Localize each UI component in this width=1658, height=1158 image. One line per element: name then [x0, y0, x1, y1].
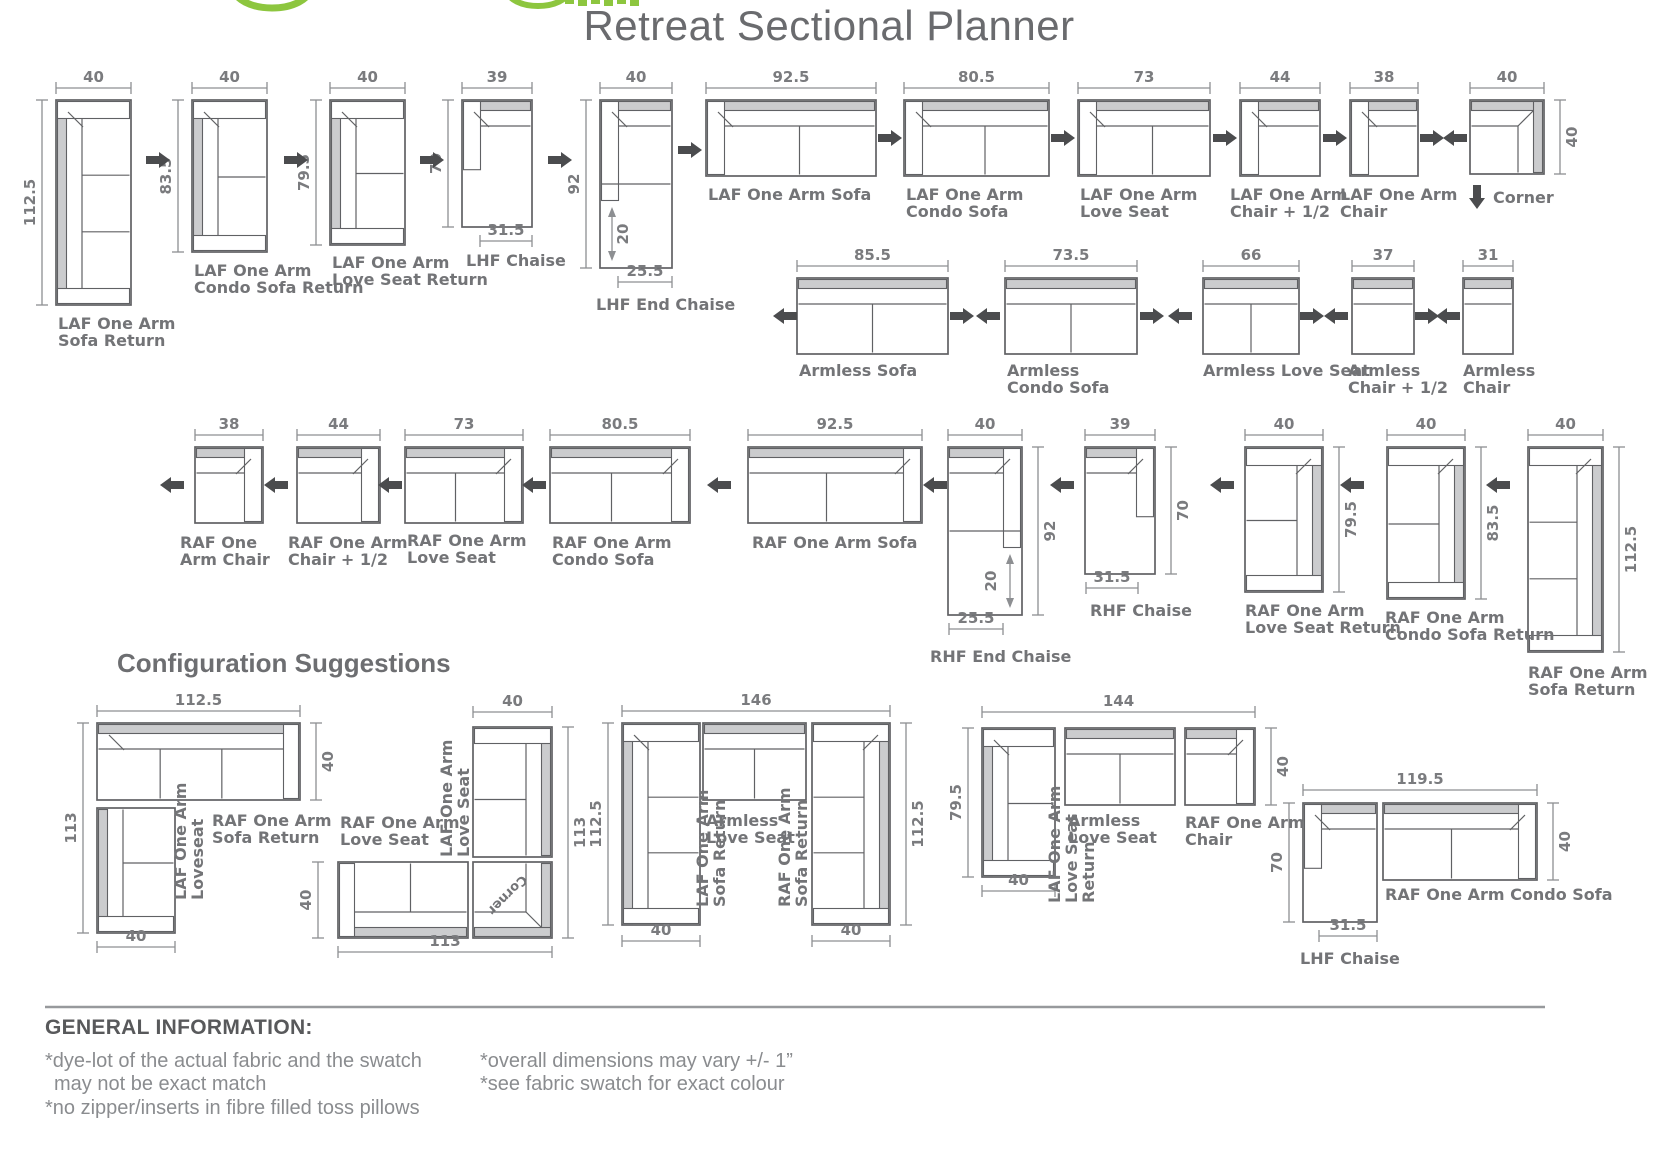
piece-label: RAF One ArmLove Seat Return	[1245, 601, 1401, 637]
dimension-label: 40	[1497, 68, 1518, 86]
connector-arrow-right-icon	[548, 152, 572, 168]
dimension-label: 40	[626, 68, 647, 86]
figure-cfg5-lhf-chaise	[1303, 803, 1377, 922]
dimension-113: 113	[62, 723, 89, 933]
dimension-label: 144	[1103, 692, 1134, 710]
figure-lhf-chaise	[462, 100, 532, 227]
dimension-40: 40	[56, 68, 131, 94]
piece-label: LAF One Arm Sofa	[708, 185, 871, 204]
dimension-label: 40	[502, 692, 523, 710]
connector-arrow-right-icon	[1415, 308, 1439, 324]
dimension-85.5: 85.5	[797, 246, 948, 272]
piece-label: RAF One ArmSofa Return	[1528, 663, 1648, 699]
piece-label: RAF One ArmChair	[1185, 813, 1305, 849]
dimension-40: 40	[473, 692, 552, 718]
dimension-label: 40	[1274, 415, 1295, 433]
figure-armless-love-seat	[1203, 278, 1299, 354]
dimension-40: 40	[192, 68, 267, 94]
dimension-label: 31	[1478, 246, 1499, 264]
dimension-112.5: 112.5	[1613, 447, 1640, 652]
connector-arrow-right-icon	[878, 130, 902, 146]
figure-cfg5-raf-condo-sofa	[1383, 803, 1537, 880]
dimension-label: 112.5	[1622, 526, 1640, 573]
dimension-146: 146	[622, 691, 890, 717]
note-dye-lot-cont: may not be exact match	[45, 1073, 266, 1096]
dimension-92: 92	[565, 100, 592, 268]
sectional-planner-page: Corner40112.54083.54079.5397031.54092202…	[0, 0, 1658, 1158]
connector-arrow-left-icon	[1436, 308, 1460, 324]
connector-arrow-left-icon	[1324, 308, 1348, 324]
dimension-label: 70	[1268, 852, 1286, 873]
dimension-40: 40	[1265, 728, 1292, 805]
dimension-label: 112.5	[909, 800, 927, 847]
figure-cfg1-laf-loveseat	[97, 808, 175, 933]
connector-arrow-left-icon	[1168, 308, 1192, 324]
dimension-79.5: 79.5	[1333, 447, 1360, 592]
connector-arrow-right-icon	[678, 142, 702, 158]
connector-arrow-right-icon	[1140, 308, 1164, 324]
note-dimensions-vary: *overall dimensions may vary +/- 1”	[480, 1050, 793, 1073]
piece-label: RAF One Arm Condo Sofa	[1385, 885, 1613, 904]
dimension-73: 73	[405, 415, 523, 441]
connector-arrow-left-icon	[923, 477, 947, 493]
piece-label: RAF One ArmChair + 1/2	[288, 533, 408, 569]
piece-label: LAF One ArmCondo Sofa	[906, 185, 1023, 221]
dimension-112.5: 112.5	[900, 723, 927, 925]
figure-laf-one-arm-chair	[1350, 100, 1418, 176]
figure-armless-chair	[1463, 278, 1513, 354]
dimension-40: 40	[600, 68, 672, 94]
dimension-44: 44	[1240, 68, 1320, 94]
piece-label: RHF Chaise	[1090, 601, 1192, 620]
dimension-label: 40	[1556, 831, 1574, 852]
dimension-label: 79.5	[947, 784, 965, 821]
piece-label: LAF One ArmChair	[1340, 185, 1457, 221]
dimension-79.5: 79.5	[295, 100, 322, 245]
dimension-label: 40	[841, 921, 862, 939]
dimension-92.5: 92.5	[748, 415, 922, 441]
dimension-70: 70	[1165, 447, 1192, 574]
dimension-label: 119.5	[1396, 770, 1443, 788]
note-no-zipper: *no zipper/inserts in fibre filled toss …	[45, 1097, 420, 1120]
figure-raf-one-arm-sofa	[748, 447, 922, 523]
connector-arrow-left-icon	[264, 477, 288, 493]
dimension-80.5: 80.5	[550, 415, 690, 441]
figure-armless-chair-and-half	[1352, 278, 1414, 354]
figure-lhf-end-chaise	[600, 100, 672, 268]
dimension-label: 40	[83, 68, 104, 86]
dimension-label: 113	[429, 932, 460, 950]
connector-arrow-down-icon	[1469, 185, 1485, 209]
note-dye-lot: *dye-lot of the actual fabric and the sw…	[45, 1050, 422, 1073]
dimension-44: 44	[297, 415, 380, 441]
figure-cfg2-raf-love-seat	[338, 862, 468, 938]
piece-label: RHF End Chaise	[930, 647, 1071, 666]
dimension-label: 83.5	[1484, 504, 1502, 541]
figure-raf-one-arm-chair-and-half	[297, 447, 380, 523]
piece-label: RAF One Arm Sofa	[752, 533, 917, 552]
dimension-label: 38	[1374, 68, 1395, 86]
figure-raf-one-arm-love-seat-return	[1245, 447, 1323, 592]
dimension-83.5: 83.5	[1475, 447, 1502, 599]
dimension-label: 73.5	[1052, 246, 1089, 264]
piece-label: RAF One ArmCondo Sofa	[552, 533, 672, 569]
piece-label: Armless Love Seat	[1203, 361, 1370, 380]
piece-label: RAF One ArmSofa Return	[775, 787, 811, 907]
figure-cfg3-laf-sofa-return	[622, 723, 700, 925]
connector-arrow-left-icon	[707, 477, 731, 493]
dimension-92.5: 92.5	[706, 68, 876, 94]
dimension-label: 31.5	[1093, 568, 1130, 586]
dimension-label: 112.5	[21, 179, 39, 226]
dimension-label: 39	[487, 68, 508, 86]
dimension-119.5: 119.5	[1303, 770, 1537, 796]
figure-laf-one-arm-love-seat-return	[330, 100, 405, 245]
dimension-label: 39	[1110, 415, 1131, 433]
figure-cfg4-armless-love-seat	[1065, 728, 1175, 805]
figure-raf-one-arm-sofa-return	[1528, 447, 1603, 652]
figure-cfg4-raf-chair	[1185, 728, 1255, 805]
config-suggestions-heading: Configuration Suggestions	[117, 648, 451, 679]
general-info-heading: GENERAL INFORMATION:	[45, 1016, 313, 1040]
figure-raf-one-arm-chair	[195, 447, 263, 523]
dimension-38: 38	[195, 415, 263, 441]
dimension-label: 40	[319, 751, 337, 772]
dimension-40: 40	[297, 862, 324, 938]
figure-cfg1-raf-sofa-return	[97, 723, 300, 800]
dimension-label: 113	[62, 812, 80, 843]
dimension-40: 40	[330, 68, 405, 94]
piece-label: Armless Sofa	[799, 361, 917, 380]
connector-arrow-right-icon	[1051, 130, 1075, 146]
dimension-40: 40	[310, 723, 337, 800]
figure-cfg2-corner: Corner	[473, 862, 552, 938]
dimension-83.5: 83.5	[157, 100, 184, 252]
dimension-label: 40	[297, 890, 315, 911]
dimension-label: 66	[1241, 246, 1262, 264]
dimension-label: 25.5	[957, 609, 994, 627]
connector-arrow-right-icon	[950, 308, 974, 324]
figure-laf-one-arm-chair-and-half	[1240, 100, 1320, 176]
dimension-label: 80.5	[601, 415, 638, 433]
dimension-label: 40	[1563, 127, 1581, 148]
connector-arrow-left-icon	[522, 477, 546, 493]
piece-label: LHF Chaise	[466, 251, 566, 270]
dimension-label: 20	[982, 571, 1000, 592]
dimension-label: 44	[1270, 68, 1291, 86]
dimension-112.5: 112.5	[587, 723, 614, 925]
dimension-40: 40	[1547, 803, 1574, 880]
piece-label: Corner	[1493, 188, 1554, 207]
figure-laf-one-arm-sofa-return	[56, 100, 131, 305]
connector-arrow-right-icon	[1420, 130, 1444, 146]
dimension-92: 92	[1032, 447, 1059, 615]
page-title: Retreat Sectional Planner	[0, 2, 1658, 50]
dimension-label: 146	[740, 691, 771, 709]
piece-label: RAF One ArmLove Seat	[407, 531, 527, 567]
dimension-31: 31	[1463, 246, 1513, 272]
dimension-label: 25.5	[626, 262, 663, 280]
connector-arrow-left-icon	[1486, 477, 1510, 493]
dimension-label: 31.5	[487, 221, 524, 239]
dimension-label: 92.5	[772, 68, 809, 86]
piece-label: RAF OneArm Chair	[180, 533, 270, 569]
dimension-31.5: 31.5	[1086, 568, 1138, 594]
dimension-label: 92.5	[816, 415, 853, 433]
figure-corner	[1470, 100, 1544, 174]
piece-label: ArmlessChair	[1463, 361, 1535, 397]
piece-label: LAF One ArmLove Seat Return	[332, 253, 488, 289]
dimension-label: 92	[1041, 521, 1059, 542]
dimension-40: 40	[1245, 415, 1323, 441]
piece-label: LAF One ArmSofa Return	[58, 314, 175, 350]
dimension-label: 85.5	[854, 246, 891, 264]
dimension-40: 40	[1387, 415, 1465, 441]
dimension-39: 39	[1085, 415, 1155, 441]
dimension-label: 40	[1008, 871, 1029, 889]
dimension-label: 79.5	[1342, 501, 1360, 538]
dimension-39: 39	[462, 68, 532, 94]
dimension-label: 40	[651, 921, 672, 939]
dimension-label: 112.5	[175, 691, 222, 709]
connector-arrow-right-icon	[1323, 130, 1347, 146]
figure-laf-one-arm-condo-sofa-return	[192, 100, 267, 252]
dimension-144: 144	[982, 692, 1255, 718]
figure-raf-one-arm-condo-sofa	[550, 447, 690, 523]
dimension-label: 80.5	[958, 68, 995, 86]
piece-label: LAF One ArmChair + 1/2	[1230, 185, 1347, 221]
planner-diagram-canvas: Corner40112.54083.54079.5397031.54092202…	[0, 0, 1658, 1158]
dimension-label: 40	[1274, 756, 1292, 777]
dimension-40: 40	[1528, 415, 1603, 441]
connector-arrow-left-icon	[1050, 477, 1074, 493]
dimension-79.5: 79.5	[947, 728, 974, 877]
figure-armless-condo-sofa	[1005, 278, 1137, 354]
figure-raf-one-arm-love-seat	[405, 447, 523, 523]
figure-raf-one-arm-condo-sofa-return	[1387, 447, 1465, 599]
dimension-31.5: 31.5	[480, 221, 532, 247]
note-fabric-swatch: *see fabric swatch for exact colour	[480, 1073, 785, 1096]
dimension-40: 40	[948, 415, 1022, 441]
piece-label: LAF One ArmLove Seat	[1080, 185, 1197, 221]
dimension-label: 40	[126, 927, 147, 945]
connector-arrow-left-icon	[1443, 130, 1467, 146]
connector-arrow-right-icon	[1213, 130, 1237, 146]
piece-label: LHF End Chaise	[596, 295, 735, 314]
connector-arrow-left-icon	[773, 308, 797, 324]
dimension-label: 40	[1416, 415, 1437, 433]
piece-label: ArmlessChair + 1/2	[1348, 361, 1448, 397]
dimension-40: 40	[1554, 100, 1581, 174]
dimension-label: 44	[328, 415, 349, 433]
figure-cfg3-raf-sofa-return	[812, 723, 890, 925]
dimension-40: 40	[1470, 68, 1544, 94]
dimension-80.5: 80.5	[904, 68, 1049, 94]
connector-arrow-left-icon	[1340, 477, 1364, 493]
dimension-112.5: 112.5	[97, 691, 300, 717]
piece-label: RAF One ArmSofa Return	[212, 811, 332, 847]
dimension-112.5: 112.5	[21, 100, 48, 305]
dimension-label: 20	[614, 224, 632, 245]
figure-laf-one-arm-love-seat	[1078, 100, 1210, 176]
figure-rhf-chaise	[1085, 447, 1155, 574]
piece-label: LAF One ArmSofa Return	[693, 790, 729, 907]
figure-laf-one-arm-condo-sofa	[904, 100, 1049, 176]
dimension-66: 66	[1203, 246, 1299, 272]
dimension-label: 73	[1134, 68, 1155, 86]
dimension-label: 40	[357, 68, 378, 86]
dimension-73: 73	[1078, 68, 1210, 94]
dimension-label: 92	[565, 174, 583, 195]
dimension-37: 37	[1352, 246, 1414, 272]
dimension-label: 112.5	[587, 800, 605, 847]
dimension-label: 40	[1555, 415, 1576, 433]
connector-arrow-left-icon	[976, 308, 1000, 324]
figure-armless-sofa	[797, 278, 948, 354]
dimension-38: 38	[1350, 68, 1418, 94]
dimension-113: 113	[562, 727, 589, 938]
connector-arrow-left-icon	[160, 477, 184, 493]
piece-label: ArmlessCondo Sofa	[1007, 361, 1109, 397]
dimension-label: 38	[219, 415, 240, 433]
figure-laf-one-arm-sofa	[706, 100, 876, 176]
connector-arrow-left-icon	[1210, 477, 1234, 493]
dimension-label: 37	[1373, 246, 1394, 264]
dimension-label: 70	[1174, 500, 1192, 521]
dimension-label: 40	[975, 415, 996, 433]
dimension-label: 31.5	[1329, 916, 1366, 934]
connector-arrow-left-icon	[378, 477, 402, 493]
connector-arrow-right-icon	[1300, 308, 1324, 324]
piece-label: LAF One ArmLove Seat	[437, 740, 473, 857]
dimension-73.5: 73.5	[1005, 246, 1137, 272]
dimension-label: 40	[219, 68, 240, 86]
piece-label: LHF Chaise	[1300, 949, 1400, 968]
figure-cfg2-laf-love-seat	[473, 727, 552, 857]
dimension-label: 73	[454, 415, 475, 433]
